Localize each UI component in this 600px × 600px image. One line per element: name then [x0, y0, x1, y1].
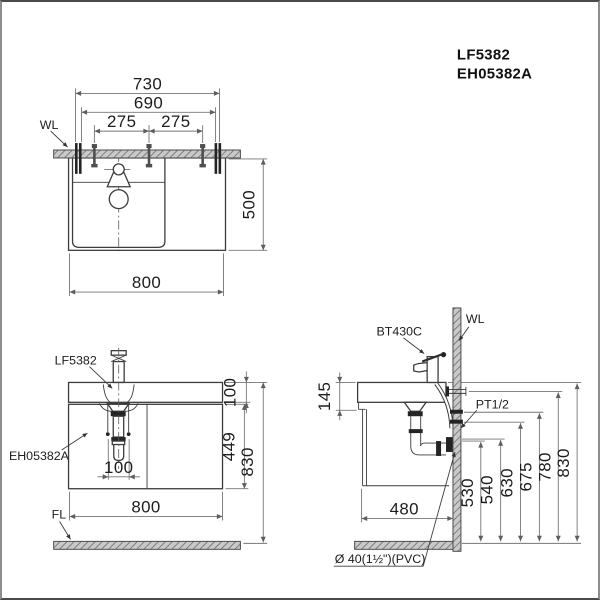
dim-530: 530: [458, 478, 477, 507]
counter-front: [69, 382, 223, 402]
dim-275-left: 275: [107, 112, 136, 131]
wall-leader-top: [51, 131, 68, 147]
title-cabinet-model: EH05382A: [457, 66, 532, 82]
front-view-dimensions: 100 449 830 100 800: [70, 372, 268, 544]
drain-assembly-front: [99, 348, 138, 469]
dim-675: 675: [516, 462, 535, 491]
drain-hole-plan: [109, 190, 128, 209]
floor-label: FL: [52, 508, 67, 522]
cabinet-label-front: EH05382A: [9, 449, 70, 463]
technical-drawing-canvas: LF5382 EH05382A WL: [0, 0, 600, 600]
dim-275-right: 275: [161, 112, 190, 131]
cabinet-front: [69, 404, 223, 488]
dim-100-drain: 100: [104, 458, 133, 477]
dim-780: 780: [535, 452, 554, 481]
faucet-head-plan: [113, 164, 124, 175]
faucet-leader-side: [403, 338, 424, 354]
front-view: LF5382 EH05382A FL 100 449 830 100 800: [9, 348, 267, 550]
wall-label-top: WL: [40, 118, 59, 132]
wall-label-side: WL: [466, 312, 485, 326]
faucet-label-side: BT430C: [376, 325, 422, 339]
wall-line-bar-side: [453, 308, 461, 551]
cabinet-side-panel: [363, 409, 449, 485]
faucet-leader-front: [89, 367, 112, 389]
dim-145: 145: [315, 382, 334, 411]
countertop-plan: [69, 158, 226, 250]
dim-690: 690: [134, 93, 163, 112]
supply-stub-lower: [450, 420, 463, 424]
supply-leader: [461, 410, 477, 428]
title-block: LF5382 EH05382A: [457, 48, 532, 83]
supply-hose-outer: [436, 383, 451, 428]
dim-830-side: 830: [554, 448, 573, 477]
top-view: WL 730 690 275 275 500 800: [40, 74, 267, 296]
top-view-dimensions: 730 690 275 275 500 800: [70, 74, 268, 296]
cabinet-leader-front: [62, 433, 88, 450]
supply-stub-upper: [450, 410, 463, 414]
dim-480: 480: [390, 500, 419, 519]
wall-line-bar: [54, 150, 241, 158]
drawing-svg: LF5382 EH05382A WL: [2, 2, 598, 598]
counter-side: [358, 382, 446, 402]
floor-leader: [60, 522, 71, 540]
dim-800-front: 800: [131, 498, 160, 517]
basin-apron: [359, 402, 366, 409]
dim-500: 500: [239, 190, 258, 219]
supply-label: PT1/2: [476, 397, 509, 411]
dim-800-top: 800: [132, 273, 161, 292]
dim-830-front: 830: [238, 447, 257, 476]
floor-line-bar-side: [355, 541, 453, 549]
title-faucet-model: LF5382: [457, 48, 510, 64]
faucet-label-front: LF5382: [55, 354, 97, 368]
floor-line-bar: [54, 541, 241, 549]
faucet-side: [414, 352, 446, 382]
dim-630: 630: [498, 468, 517, 497]
dim-540: 540: [478, 475, 497, 504]
side-view: WL BT430C PT1/2 Ø 40(1½")(PVC) 145 480 5…: [315, 308, 581, 566]
dim-100-counter: 100: [220, 378, 239, 407]
drain-pipe-label: Ø 40(1½")(PVC): [335, 552, 426, 566]
dim-730: 730: [133, 74, 162, 93]
dim-449: 449: [219, 432, 238, 461]
